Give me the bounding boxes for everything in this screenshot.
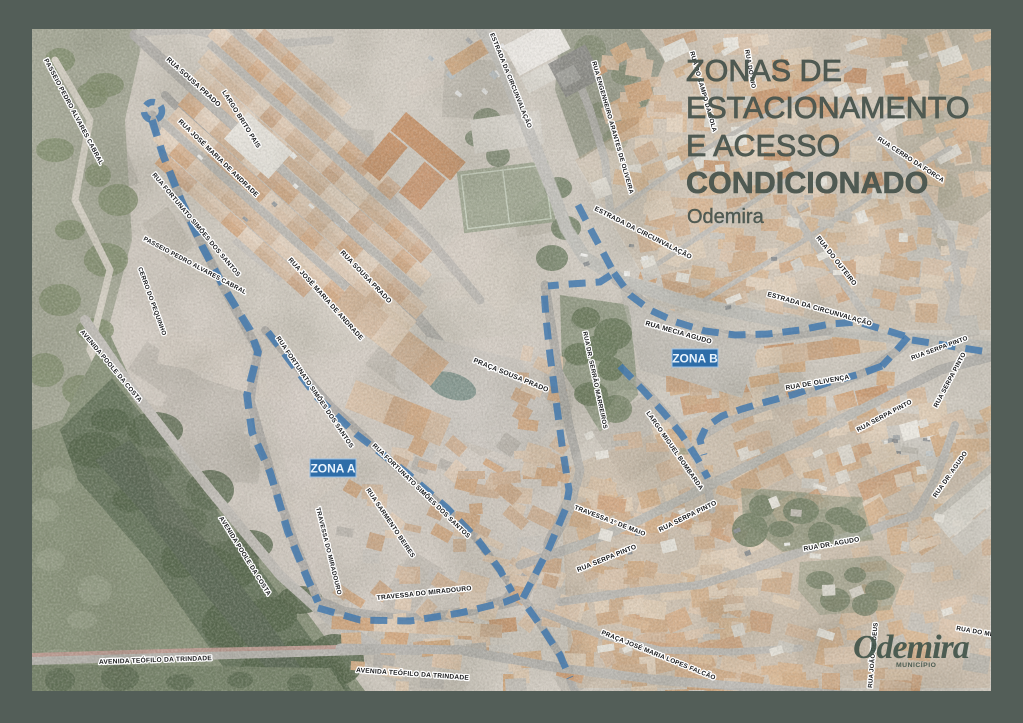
svg-text:ZONA A: ZONA A (310, 462, 355, 476)
svg-text:Odemira: Odemira (687, 206, 765, 228)
svg-text:ESTACIONAMENTO: ESTACIONAMENTO (686, 91, 970, 125)
svg-text:MUNICÍPIO: MUNICÍPIO (896, 660, 936, 669)
svg-text:ZONA B: ZONA B (672, 352, 718, 366)
svg-text:CONDICIONADO: CONDICIONADO (686, 166, 928, 200)
svg-text:E ACESSO: E ACESSO (686, 129, 840, 163)
svg-text:Odemira: Odemira (853, 629, 970, 666)
svg-text:ZONAS DE: ZONAS DE (686, 54, 842, 88)
